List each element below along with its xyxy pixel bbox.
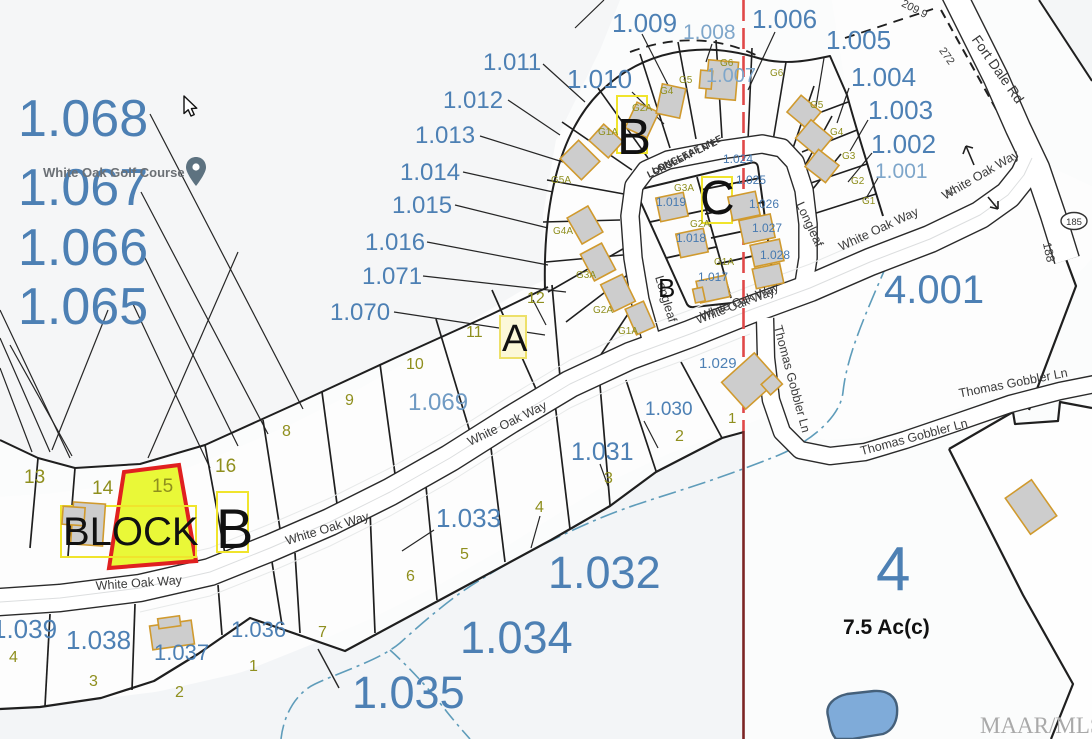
svg-text:G1: G1	[862, 196, 876, 207]
svg-text:G3: G3	[842, 151, 856, 162]
svg-text:G6: G6	[720, 58, 734, 69]
svg-text:3: 3	[604, 470, 613, 487]
svg-text:G4: G4	[830, 127, 844, 138]
svg-text:G1A: G1A	[714, 257, 734, 268]
svg-text:9: 9	[345, 392, 354, 409]
svg-text:1.025: 1.025	[736, 173, 766, 187]
svg-text:1.038: 1.038	[66, 625, 131, 655]
svg-text:1.028: 1.028	[760, 248, 790, 262]
svg-text:7.5 Ac(c): 7.5 Ac(c)	[843, 616, 930, 639]
svg-text:14: 14	[92, 478, 114, 499]
svg-text:1.069: 1.069	[408, 389, 468, 416]
svg-text:4: 4	[9, 649, 18, 666]
svg-text:1.036: 1.036	[231, 617, 286, 642]
svg-text:G1A: G1A	[598, 127, 618, 138]
svg-text:1.070: 1.070	[330, 299, 390, 326]
svg-text:B: B	[216, 497, 253, 560]
svg-text:185: 185	[1066, 217, 1082, 228]
svg-text:2: 2	[675, 428, 684, 445]
svg-text:4.001: 4.001	[884, 268, 984, 312]
svg-text:11: 11	[466, 324, 483, 341]
svg-text:15: 15	[152, 476, 173, 497]
svg-text:G3A: G3A	[576, 270, 596, 281]
svg-text:16: 16	[215, 456, 236, 477]
svg-text:12: 12	[527, 290, 545, 307]
svg-text:1.002: 1.002	[871, 129, 936, 159]
svg-text:1.068: 1.068	[18, 90, 148, 148]
svg-text:C: C	[700, 172, 735, 225]
svg-text:1.065: 1.065	[18, 278, 148, 336]
svg-text:1.037: 1.037	[154, 640, 209, 665]
svg-text:1.027: 1.027	[752, 221, 782, 235]
svg-text:1.026: 1.026	[749, 197, 779, 211]
svg-text:1.033: 1.033	[436, 503, 501, 533]
svg-text:1.018: 1.018	[676, 231, 706, 245]
svg-text:1.008: 1.008	[683, 21, 736, 44]
svg-text:G2A: G2A	[593, 305, 613, 316]
svg-text:G4A: G4A	[553, 226, 573, 237]
svg-text:1.066: 1.066	[18, 219, 148, 277]
svg-text:5: 5	[460, 546, 469, 563]
svg-text:G2: G2	[851, 176, 865, 187]
svg-text:3: 3	[89, 673, 98, 690]
svg-text:2: 2	[175, 684, 184, 701]
svg-text:G3A: G3A	[674, 183, 694, 194]
svg-text:G4: G4	[660, 86, 674, 97]
svg-text:G1A: G1A	[618, 326, 638, 337]
svg-text:1.017: 1.017	[698, 270, 728, 284]
svg-text:BLOCK: BLOCK	[63, 510, 199, 554]
svg-text:1.016: 1.016	[365, 229, 425, 256]
svg-text:White Oak Golf Course: White Oak Golf Course	[43, 165, 185, 180]
svg-text:1.071: 1.071	[362, 263, 422, 290]
svg-text:1.032: 1.032	[548, 547, 661, 598]
svg-text:1.003: 1.003	[868, 95, 933, 125]
svg-text:G6: G6	[770, 68, 784, 79]
svg-text:1: 1	[728, 410, 736, 427]
svg-text:MAAR/MLS: MAAR/MLS	[980, 713, 1092, 738]
svg-text:1.010: 1.010	[567, 64, 632, 94]
svg-text:1.012: 1.012	[443, 87, 503, 114]
svg-text:10: 10	[406, 356, 424, 373]
svg-text:G5: G5	[679, 75, 693, 86]
svg-text:13: 13	[24, 467, 45, 488]
svg-text:1.013: 1.013	[415, 122, 475, 149]
svg-text:1.030: 1.030	[645, 399, 693, 420]
svg-text:1.029: 1.029	[699, 355, 737, 372]
svg-text:A: A	[502, 318, 528, 360]
svg-text:1.039: 1.039	[0, 614, 57, 644]
svg-text:1.004: 1.004	[851, 62, 916, 92]
svg-text:1.001: 1.001	[875, 160, 928, 183]
svg-text:1.019: 1.019	[656, 195, 686, 209]
svg-text:1.011: 1.011	[483, 49, 541, 76]
svg-text:8: 8	[282, 423, 291, 440]
svg-text:1.035: 1.035	[352, 667, 465, 718]
svg-text:4: 4	[876, 535, 910, 604]
svg-text:1.024: 1.024	[723, 152, 753, 166]
svg-text:1.005: 1.005	[826, 25, 891, 55]
svg-text:4: 4	[535, 499, 544, 516]
svg-text:1.009: 1.009	[612, 8, 677, 38]
svg-text:1.014: 1.014	[400, 159, 460, 186]
svg-text:7: 7	[318, 624, 327, 641]
svg-text:6: 6	[406, 568, 415, 585]
svg-text:B: B	[658, 273, 675, 303]
svg-text:G5A: G5A	[551, 175, 571, 186]
svg-text:1: 1	[249, 658, 258, 675]
svg-text:1.015: 1.015	[392, 192, 452, 219]
svg-text:1.034: 1.034	[460, 612, 573, 663]
svg-text:B: B	[617, 108, 651, 165]
svg-text:1.031: 1.031	[571, 438, 634, 466]
svg-text:G5: G5	[810, 100, 824, 111]
svg-text:1.006: 1.006	[752, 4, 817, 34]
